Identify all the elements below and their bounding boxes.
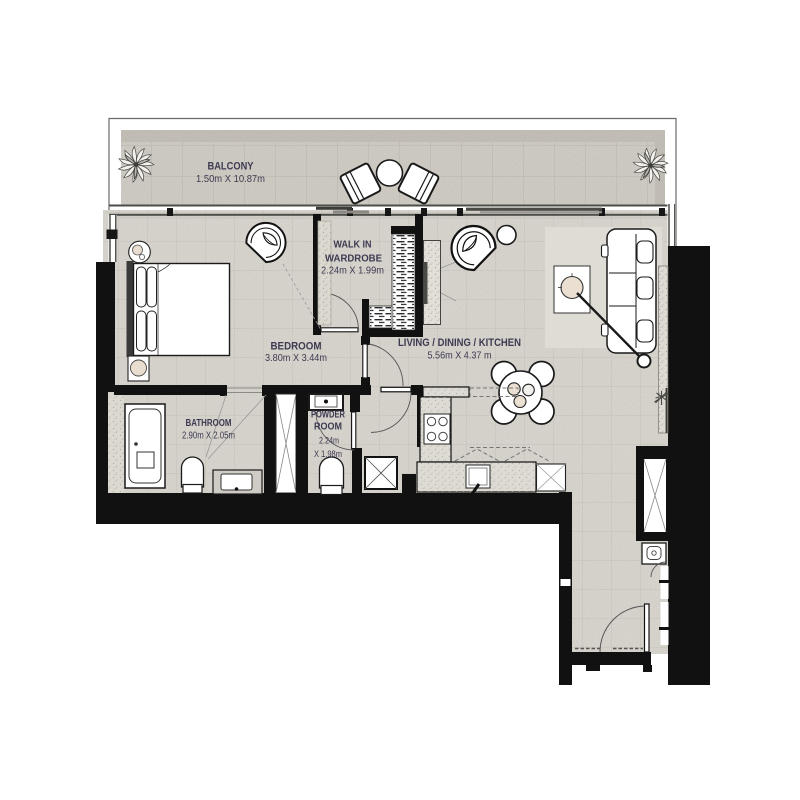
svg-text:2.24m X 1.99m: 2.24m X 1.99m <box>321 266 384 277</box>
svg-text:2.90m X 2.05m: 2.90m X 2.05m <box>182 431 235 442</box>
svg-text:ROOM: ROOM <box>314 422 342 433</box>
svg-text:BEDROOM: BEDROOM <box>271 341 322 353</box>
svg-text:X 1.98m: X 1.98m <box>314 449 342 460</box>
svg-text:BATHROOM: BATHROOM <box>186 417 232 429</box>
svg-text:POWDER: POWDER <box>311 410 346 421</box>
svg-text:BALCONY: BALCONY <box>208 161 255 173</box>
svg-text:2.24m: 2.24m <box>319 436 339 447</box>
svg-text:WALK IN: WALK IN <box>334 239 372 251</box>
svg-text:1.50m X 10.87m: 1.50m X 10.87m <box>196 173 265 185</box>
svg-text:WARDROBE: WARDROBE <box>325 253 382 265</box>
svg-text:5.56m X 4.37 m: 5.56m X 4.37 m <box>428 350 492 362</box>
svg-text:3.80m X 3.44m: 3.80m X 3.44m <box>265 352 327 364</box>
svg-text:LIVING / DINING / KITCHEN: LIVING / DINING / KITCHEN <box>398 337 521 349</box>
